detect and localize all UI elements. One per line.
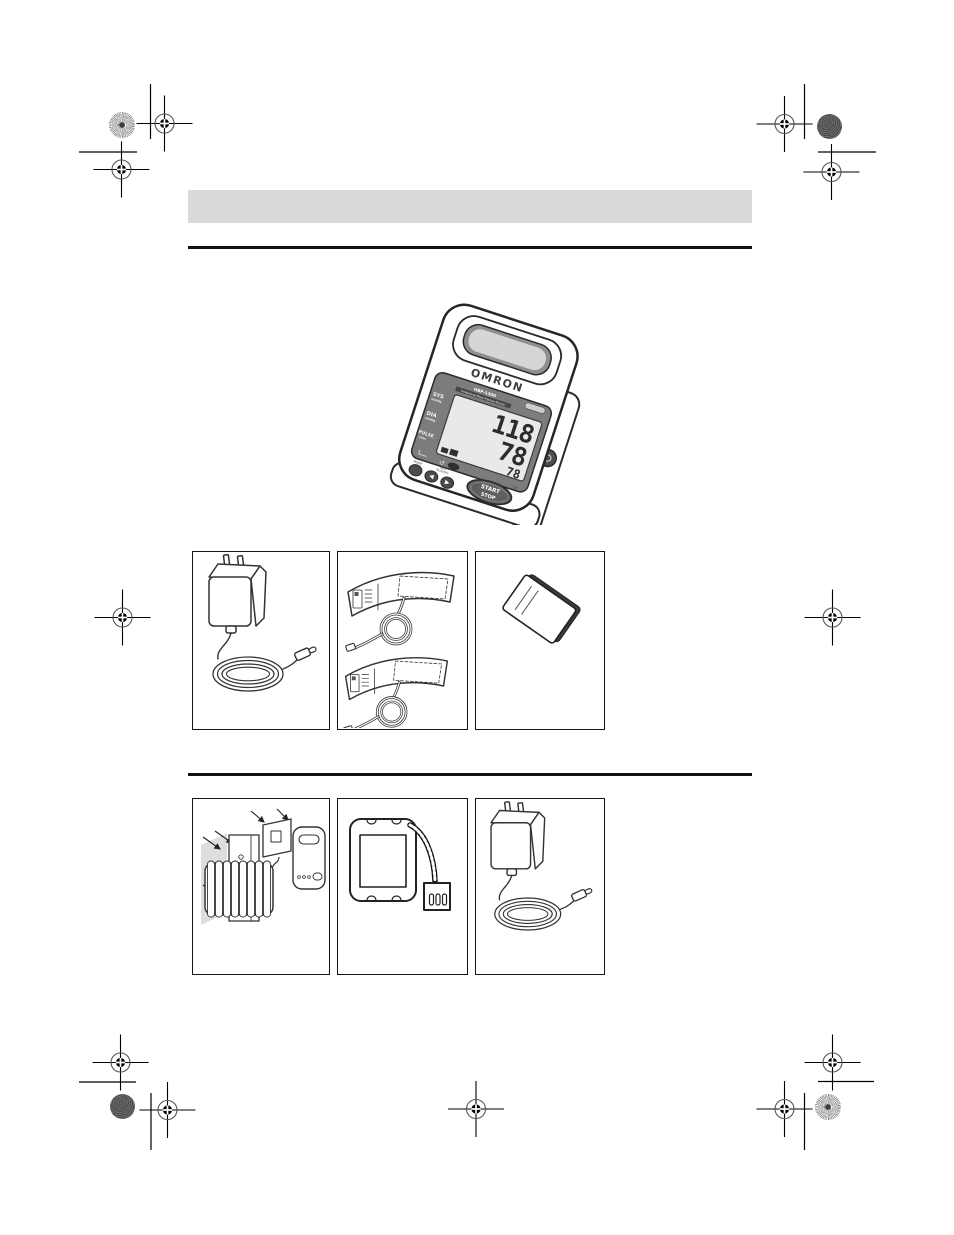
section-rule bbox=[188, 246, 752, 249]
included-item-box-battery-pack bbox=[337, 798, 468, 975]
battery-holder-kit-illustration bbox=[193, 799, 328, 973]
battery-pack-cells bbox=[205, 861, 273, 917]
section-header-bar bbox=[188, 190, 752, 223]
instruction-manual-illustration bbox=[476, 552, 603, 728]
manual-page: OMRON HBP-1300 Professional Blood Pressu… bbox=[0, 0, 954, 1235]
included-item-box-battery-kit bbox=[192, 798, 330, 975]
registration-mark-icon bbox=[805, 590, 861, 646]
blood-pressure-monitor-illustration: OMRON HBP-1300 Professional Blood Pressu… bbox=[352, 300, 622, 525]
included-item-box-arm-cuffs bbox=[337, 551, 468, 730]
arm-cuffs-illustration bbox=[338, 552, 466, 728]
rechargeable-battery-pack-illustration bbox=[338, 799, 466, 973]
included-item-box-ac-adapter-2 bbox=[475, 798, 605, 975]
registration-mark-icon bbox=[94, 142, 150, 198]
included-item-box-ac-adapter bbox=[192, 551, 330, 730]
halftone-color-patch-icon bbox=[110, 1094, 135, 1119]
registration-mark-icon bbox=[448, 1081, 504, 1137]
ac-adapter-illustration bbox=[193, 552, 328, 728]
registration-mark-icon bbox=[95, 590, 151, 646]
registration-mark-icon bbox=[137, 96, 193, 152]
registration-mark-icon bbox=[140, 1082, 196, 1138]
included-item-box-manual bbox=[475, 551, 605, 730]
section-rule bbox=[188, 773, 752, 776]
sunburst-color-patch-icon bbox=[815, 1094, 841, 1120]
halftone-color-patch-icon bbox=[817, 114, 842, 139]
ac-adapter-illustration bbox=[476, 799, 603, 965]
sunburst-color-patch-icon bbox=[109, 112, 135, 138]
